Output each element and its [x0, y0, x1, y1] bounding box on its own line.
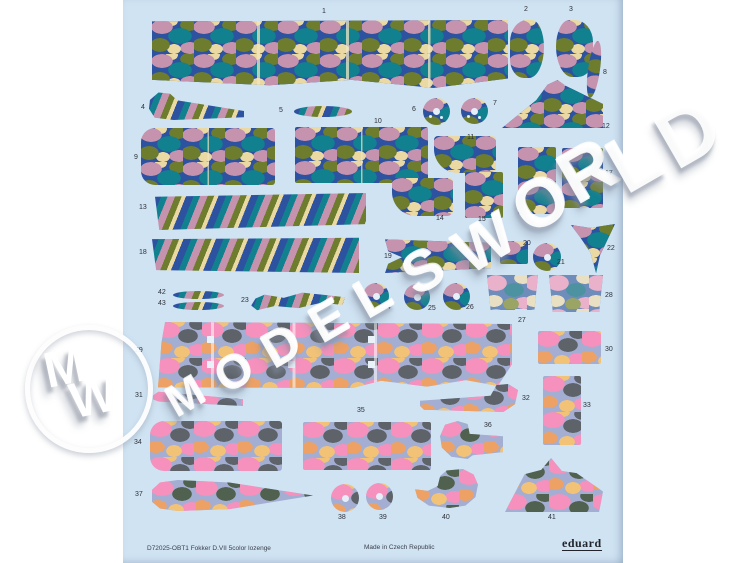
piece-number-25: 25: [428, 305, 436, 312]
piece-number-5: 5: [279, 107, 283, 114]
piece-number-3: 3: [569, 6, 573, 13]
decal-piece-7: [461, 98, 488, 124]
piece-number-11: 11: [467, 134, 474, 141]
watermark-monogram-w: W: [65, 368, 122, 427]
disc-hole: [414, 294, 421, 301]
piece-number-19: 19: [384, 253, 392, 260]
catalog-number-text: D72025-OBT1 Fokker D.VII 5color lozenge: [147, 546, 271, 553]
piece-number-1: 1: [322, 8, 326, 15]
piece-number-12: 12: [602, 123, 610, 130]
piece-number-23: 23: [241, 297, 249, 304]
piece-number-37: 37: [135, 491, 143, 498]
piece-number-17: 17: [605, 170, 613, 177]
disc-hole: [433, 108, 440, 115]
piece-number-24: 24: [383, 304, 391, 311]
piece-number-38: 38: [338, 514, 346, 521]
piece-number-22: 22: [607, 245, 615, 252]
decal-piece-29: [158, 322, 512, 388]
decal-piece-1: [152, 20, 508, 88]
panel-lines: [158, 322, 512, 388]
decal-piece-10: [295, 127, 428, 183]
panel-lines: [295, 127, 428, 183]
decal-piece-35: [303, 422, 431, 470]
piece-number-4: 4: [141, 104, 145, 111]
decal-piece-21: [533, 243, 561, 271]
disc-hole: [471, 108, 478, 115]
panel-lines: [152, 20, 508, 88]
decal-piece-9: [141, 128, 275, 185]
piece-number-31: 31: [135, 392, 143, 399]
piece-number-35: 35: [357, 407, 365, 414]
piece-number-16: 16: [529, 218, 537, 225]
decal-piece-18: [152, 237, 359, 273]
piece-number-39: 39: [379, 514, 387, 521]
decal-piece-14: [392, 178, 453, 216]
watermark-letter: D: [639, 77, 737, 188]
disc-hole: [376, 493, 383, 500]
piece-number-43: 43: [158, 300, 166, 307]
decal-piece-17: [562, 148, 603, 208]
piece-number-7: 7: [493, 100, 497, 107]
decal-piece-39: [366, 483, 393, 510]
decal-piece-13: [155, 193, 366, 230]
decal-piece-38: [331, 484, 359, 512]
piece-number-13: 13: [139, 204, 147, 211]
piece-number-26: 26: [466, 304, 474, 311]
piece-number-18: 18: [139, 249, 147, 256]
decal-piece-11: [434, 136, 496, 173]
panel-lines: [141, 128, 275, 185]
piece-number-15: 15: [478, 216, 486, 223]
piece-number-28: 28: [605, 292, 613, 299]
piece-number-14: 14: [436, 215, 444, 222]
origin-text: Made in Czech Republic: [364, 545, 434, 552]
piece-number-32: 32: [522, 395, 530, 402]
piece-number-30: 30: [605, 346, 613, 353]
piece-number-9: 9: [134, 154, 138, 161]
decal-piece-43: [173, 302, 224, 310]
piece-number-6: 6: [412, 106, 416, 113]
piece-number-20: 20: [523, 240, 531, 247]
disc-hole: [544, 254, 551, 261]
decal-piece-25: [404, 284, 430, 310]
decal-piece-16: [518, 147, 556, 214]
piece-number-36: 36: [484, 422, 492, 429]
piece-number-40: 40: [442, 514, 450, 521]
disc-hole: [342, 495, 349, 502]
decal-piece-2: [510, 20, 544, 78]
watermark-monogram-m: M: [39, 338, 90, 396]
decal-piece-5: [294, 106, 352, 117]
decal-piece-42: [173, 291, 224, 299]
decal-piece-15: [465, 172, 503, 218]
decal-piece-27: [487, 275, 538, 310]
piece-number-29: 29: [135, 347, 143, 354]
decal-piece-19: [385, 238, 491, 273]
piece-number-42: 42: [158, 289, 166, 296]
piece-number-21: 21: [557, 259, 565, 266]
decal-piece-30: [538, 331, 601, 364]
eduard-brand-logo: eduard: [562, 537, 602, 551]
piece-number-10: 10: [374, 118, 382, 125]
decal-piece-28: [549, 275, 603, 312]
decal-piece-6: [423, 98, 450, 125]
piece-number-34: 34: [134, 439, 142, 446]
disc-hole: [373, 293, 380, 300]
piece-number-2: 2: [524, 6, 528, 13]
piece-number-41: 41: [548, 514, 556, 521]
piece-number-27: 27: [518, 317, 526, 324]
piece-number-8: 8: [603, 69, 607, 76]
decal-piece-33: [543, 376, 581, 445]
product-photo: 1234567891011121314151617181920212223242…: [0, 0, 750, 563]
piece-number-33: 33: [583, 402, 591, 409]
disc-hole: [453, 293, 460, 300]
decal-piece-34: [150, 421, 282, 471]
